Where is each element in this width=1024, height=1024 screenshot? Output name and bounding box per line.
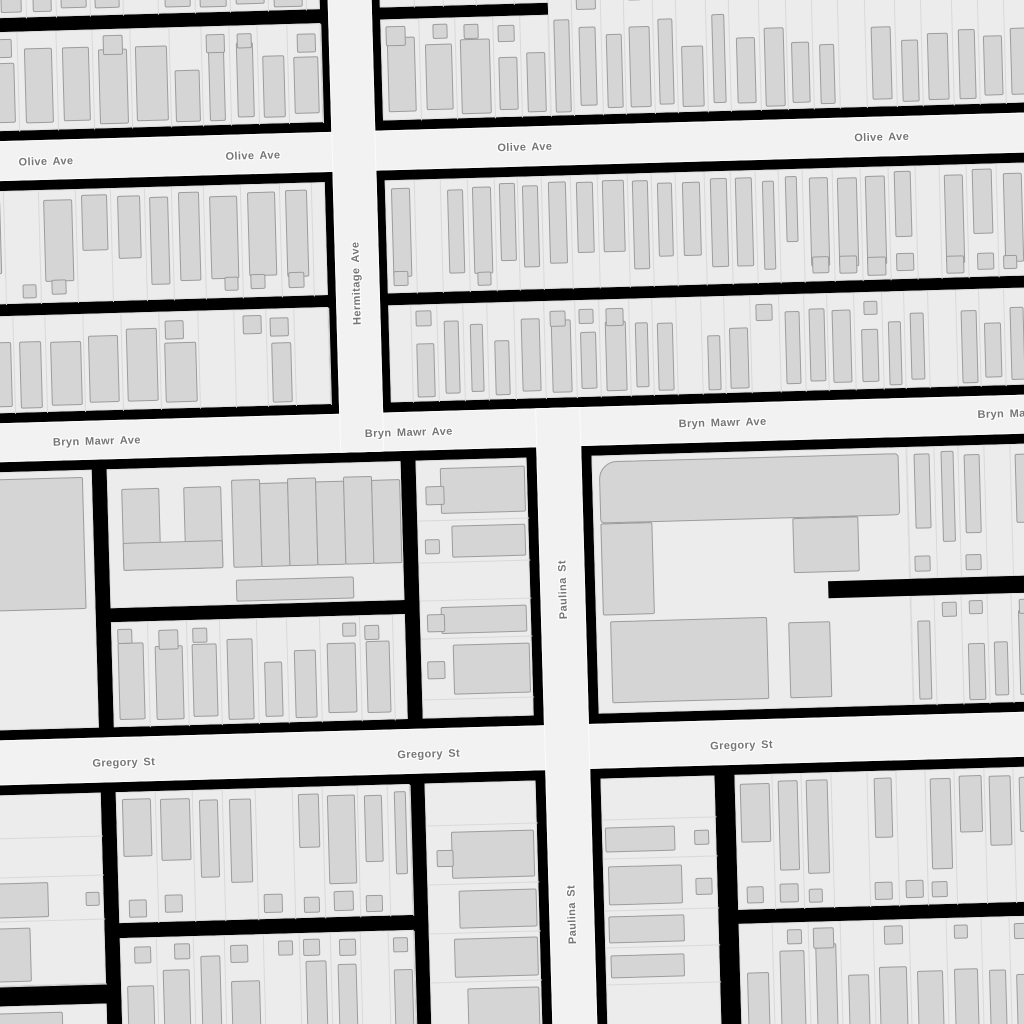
garage-footprint [779, 883, 799, 903]
garage-footprint [117, 629, 132, 644]
city-block [111, 614, 408, 727]
landmark-rowhouses [287, 477, 318, 566]
building-footprint [901, 39, 920, 101]
parcel [4, 191, 42, 305]
building-footprint [0, 201, 2, 275]
city-block [120, 930, 417, 1024]
building-footprint [459, 888, 538, 928]
street-label-bryn-mawr-ave: Bryn Mawr Ave [365, 426, 453, 440]
parcel [194, 0, 231, 14]
parcel [874, 920, 913, 1024]
garage-footprint [366, 895, 383, 912]
parcel [430, 931, 542, 983]
garage-footprint [942, 602, 957, 617]
building-footprint [984, 322, 1003, 377]
garage-footprint [694, 830, 709, 845]
parcel [229, 0, 269, 13]
parcel [13, 316, 48, 414]
garage-footprint [813, 927, 835, 949]
landmark-garage-bar [236, 576, 355, 601]
garage-footprint [425, 539, 440, 554]
building-footprint [1003, 173, 1024, 262]
building-footprint [305, 960, 328, 1024]
landmark-rowhouses [343, 476, 374, 565]
building-footprint [983, 35, 1004, 96]
parcel [544, 301, 578, 399]
building-footprint [779, 950, 806, 1024]
building-footprint [0, 1012, 64, 1024]
building-footprint [837, 177, 859, 267]
parcel [266, 309, 297, 407]
building-footprint [226, 638, 254, 720]
building-footprint [944, 174, 965, 263]
building-footprint [451, 524, 526, 558]
parcel [735, 775, 776, 911]
parcel [904, 291, 931, 389]
building-footprint [632, 180, 650, 269]
parcel [1010, 916, 1024, 1024]
building-footprint [608, 914, 685, 943]
parcel [740, 924, 776, 1024]
building-footprint [0, 0, 22, 13]
building-footprint [88, 335, 120, 403]
garage-footprint [278, 940, 293, 955]
building-footprint [192, 643, 219, 717]
building-footprint [888, 321, 903, 385]
building-footprint [59, 0, 86, 8]
garage-footprint [364, 625, 379, 640]
parcel [417, 459, 530, 522]
parcel [987, 594, 1014, 704]
parcel [220, 619, 260, 725]
parcel [418, 519, 530, 564]
parcel [264, 934, 303, 1024]
parcel [602, 776, 717, 820]
building-footprint [451, 830, 535, 879]
parcel [571, 0, 604, 116]
parcel [571, 175, 601, 289]
parcel [0, 837, 104, 881]
building-footprint [163, 0, 190, 7]
garage-footprint [250, 274, 265, 289]
garage-footprint [575, 0, 596, 10]
street-label-olive-ave: Olive Ave [225, 149, 280, 163]
building-footprint [930, 778, 954, 870]
street-label-paulina-st: Paulina St [556, 560, 570, 619]
garage-footprint [165, 894, 183, 912]
parcel [204, 185, 244, 299]
city-block [0, 23, 323, 134]
building-footprint [964, 454, 982, 533]
garage-footprint [436, 850, 453, 867]
building-footprint [657, 182, 674, 256]
city-block [425, 780, 543, 1024]
parcel [201, 27, 232, 127]
building-footprint [32, 0, 52, 12]
building-footprint [163, 969, 192, 1024]
parcel [951, 0, 981, 105]
parcel [427, 823, 540, 885]
building-footprint [454, 936, 539, 977]
garage-footprint [129, 899, 147, 917]
garage-footprint [393, 937, 408, 952]
building-footprint [522, 185, 540, 267]
parcel [198, 311, 237, 409]
parcel [652, 173, 679, 287]
building-footprint [808, 308, 826, 381]
building-footprint [43, 199, 74, 282]
street-label-bryn-mawr-ave: Bryn Mawr Ave [53, 434, 141, 448]
parcel [867, 771, 900, 907]
building-footprint [175, 70, 201, 123]
building-footprint [498, 57, 518, 111]
garage-footprint [134, 946, 151, 963]
building-footprint [551, 319, 573, 393]
building-footprint [806, 779, 831, 874]
building-footprint [327, 642, 358, 713]
parcel [431, 980, 544, 1024]
garage-footprint [415, 310, 431, 326]
parcel [0, 876, 105, 925]
landmark-rowhouses [231, 479, 262, 568]
garage-footprint [425, 486, 445, 506]
parcel [320, 616, 363, 722]
parcel [773, 923, 812, 1024]
map-viewport[interactable]: Olive AveOlive AveOlive AveOlive AveBryn… [0, 0, 1024, 1024]
parcel [45, 315, 86, 413]
parcel [225, 935, 267, 1024]
city-block [910, 590, 1024, 705]
landmark-school-building [788, 621, 832, 698]
garage-footprint [304, 897, 320, 913]
parcel [958, 446, 988, 579]
garage-footprint [969, 600, 983, 614]
building-footprint [940, 451, 956, 542]
building-footprint [199, 799, 220, 878]
parcel [605, 908, 720, 948]
building-footprint [989, 775, 1013, 846]
building-footprint [576, 182, 595, 253]
building-footprint [917, 970, 945, 1024]
garage-footprint [931, 881, 947, 897]
building-footprint [0, 342, 13, 408]
parcel [121, 313, 162, 411]
garage-footprint [303, 939, 320, 956]
garage-footprint [237, 33, 252, 48]
building-footprint [914, 453, 932, 528]
building-footprint [118, 642, 146, 720]
building-footprint [729, 327, 750, 389]
building-footprint [968, 643, 987, 700]
parcel [234, 310, 269, 408]
street-label-olive-ave: Olive Ave [854, 131, 909, 145]
city-block [385, 160, 1024, 293]
building-footprint [682, 182, 702, 256]
building-footprint [470, 324, 485, 392]
building-footprint [164, 342, 198, 403]
garage-footprint [812, 256, 829, 273]
building-footprint [285, 190, 309, 278]
parcel [455, 17, 496, 119]
building-footprint [681, 45, 705, 107]
landmark-rowhouses [259, 482, 290, 567]
building-footprint [453, 643, 531, 695]
parcel [379, 0, 415, 8]
garage-footprint [264, 894, 284, 914]
parcel [920, 0, 955, 106]
building-footprint [50, 341, 83, 406]
landmark-school-building [599, 453, 901, 523]
garage-footprint [1014, 923, 1024, 939]
building-footprint [444, 320, 461, 393]
garage-footprint [334, 891, 355, 912]
parcel [600, 0, 627, 115]
parcel [837, 0, 868, 109]
parcel [928, 291, 959, 389]
street-label-bryn-mawr-ave: Bryn Mawr Ave [977, 407, 1024, 421]
parcel [331, 932, 364, 1024]
building-footprint [747, 972, 771, 1024]
parcel [300, 933, 334, 1024]
building-footprint [1015, 454, 1024, 523]
building-footprint [294, 650, 318, 719]
parcel [419, 561, 531, 602]
parcel [513, 0, 549, 5]
garage-footprint [393, 271, 408, 286]
garage-footprint [787, 929, 802, 944]
garage-footprint [954, 924, 968, 938]
parcel [441, 179, 471, 293]
parcel [629, 299, 655, 397]
parcel [935, 595, 965, 705]
parcel [420, 598, 532, 639]
building-footprint [815, 943, 838, 1024]
parcel [157, 937, 197, 1024]
building-footprint [954, 968, 980, 1024]
parcel [801, 773, 835, 909]
parcel [1011, 593, 1024, 703]
parcel [386, 181, 418, 295]
garage-footprint [432, 24, 447, 39]
garage-footprint [863, 301, 877, 315]
parcel [977, 0, 1007, 105]
parcel [758, 0, 789, 111]
street-label-paulina-st: Paulina St [565, 885, 579, 944]
parcel [428, 882, 540, 934]
parcel [984, 768, 1017, 904]
parcel [389, 306, 414, 404]
parcel [257, 25, 290, 125]
parcel [575, 300, 602, 398]
street-label-bryn-mawr-ave: Bryn Mawr Ave [679, 416, 767, 430]
parcel [415, 180, 444, 294]
building-footprint [879, 966, 909, 1024]
building-footprint [209, 196, 239, 280]
city-block [116, 784, 414, 923]
parcel [463, 304, 490, 402]
landmark-school-building [792, 516, 860, 573]
building-footprint [0, 928, 32, 985]
garage-footprint [477, 271, 491, 285]
parcel [542, 176, 574, 290]
parcel [360, 615, 396, 721]
parcel [293, 787, 327, 919]
building-footprint [229, 798, 253, 883]
garage-footprint [914, 555, 930, 571]
building-footprint [231, 980, 262, 1024]
parcel [280, 183, 315, 297]
building-footprint [117, 195, 142, 259]
garage-footprint [242, 315, 262, 335]
parcel [358, 786, 392, 918]
parcel [389, 931, 418, 1024]
parcel [956, 290, 982, 388]
parcel [675, 0, 709, 113]
parcel [728, 0, 762, 112]
garage-footprint [497, 25, 514, 42]
garage-footprint [896, 253, 914, 271]
building-footprint [602, 180, 626, 253]
parcel [804, 294, 830, 392]
parcel [0, 0, 27, 19]
building-footprint [366, 640, 392, 713]
building-footprint [135, 45, 169, 121]
parcel [442, 0, 477, 7]
building-footprint [861, 329, 879, 382]
landmark-rowhouses [371, 479, 402, 564]
parcel [779, 295, 807, 393]
building-footprint [127, 985, 156, 1024]
building-footprint [155, 645, 185, 720]
parcel [925, 770, 958, 906]
building-footprint [735, 177, 754, 266]
parcel [628, 174, 655, 288]
building-footprint [578, 26, 597, 105]
parcel [361, 932, 392, 1024]
building-footprint [394, 969, 415, 1024]
parcel [92, 29, 133, 129]
building-footprint [972, 168, 994, 234]
parcel [381, 19, 422, 121]
garage-footprint [427, 614, 445, 632]
parcel [979, 289, 1007, 387]
city-block [0, 793, 106, 989]
parcel [89, 0, 124, 17]
street-label-gregory-st: Gregory St [397, 748, 460, 762]
parcel [803, 169, 836, 283]
building-footprint [961, 310, 979, 383]
building-footprint [98, 49, 129, 125]
garage-footprint [51, 279, 66, 294]
map-canvas[interactable]: Olive AveOlive AveOlive AveOlive AveBryn… [0, 0, 1024, 1024]
building-footprint [819, 44, 836, 104]
parcel [811, 0, 841, 109]
parcel [934, 447, 962, 580]
city-block [416, 458, 534, 719]
parcel [520, 16, 552, 118]
building-footprint [338, 964, 359, 1024]
parcel [854, 293, 885, 391]
parcel [966, 164, 999, 278]
parcel [603, 817, 718, 859]
building-footprint [711, 14, 726, 103]
building-footprint [425, 43, 454, 110]
garage-footprint [85, 892, 99, 906]
parcel [652, 0, 679, 114]
parcel [495, 178, 521, 292]
parcel [940, 165, 970, 279]
building-footprint [927, 33, 950, 101]
parcel [604, 856, 719, 911]
parcel [17, 32, 59, 132]
building-footprint [93, 0, 119, 8]
parcel [76, 189, 114, 303]
building-footprint [264, 661, 284, 716]
parcel [287, 617, 323, 723]
street-label-gregory-st: Gregory St [92, 756, 155, 770]
building-footprint [447, 189, 465, 273]
street-label-gregory-st: Gregory St [710, 739, 773, 753]
building-footprint [234, 0, 264, 5]
parcel [83, 314, 124, 412]
garage-footprint [342, 622, 356, 636]
city-block [380, 15, 551, 121]
building-footprint [809, 177, 830, 266]
parcel [1003, 0, 1024, 104]
building-footprint [327, 794, 357, 884]
garage-footprint [867, 256, 887, 276]
parcel [779, 170, 806, 284]
building-footprint [1010, 27, 1024, 94]
parcel [468, 178, 498, 292]
building-footprint [521, 318, 542, 392]
building-footprint [122, 798, 153, 857]
building-footprint [364, 795, 384, 862]
parcel [996, 163, 1024, 277]
parcel [130, 28, 172, 128]
parcel [294, 308, 332, 406]
building-footprint [785, 311, 802, 384]
building-footprint [416, 343, 436, 397]
building-footprint [499, 183, 517, 261]
building-footprint [494, 340, 511, 395]
building-footprint [19, 341, 43, 409]
parcel [1004, 289, 1024, 387]
parcel [223, 789, 260, 921]
building-footprint [293, 56, 320, 114]
building-footprint [785, 176, 799, 242]
building-footprint [1009, 307, 1024, 380]
parcel [772, 774, 805, 910]
parcel [514, 302, 547, 400]
parcel [56, 31, 95, 131]
city-block [0, 0, 320, 21]
parcel [861, 167, 892, 281]
garage-footprint [874, 882, 892, 900]
city-block [739, 913, 1024, 1024]
garage-footprint [905, 880, 923, 898]
city-block [0, 182, 328, 307]
parcel [907, 447, 938, 580]
parcel [194, 936, 228, 1024]
parcel [475, 0, 515, 6]
building-footprint [262, 55, 286, 118]
parcel [910, 919, 950, 1024]
building-footprint [791, 42, 811, 103]
parcel [25, 0, 57, 18]
parcel [487, 303, 517, 401]
parcel [169, 27, 204, 127]
